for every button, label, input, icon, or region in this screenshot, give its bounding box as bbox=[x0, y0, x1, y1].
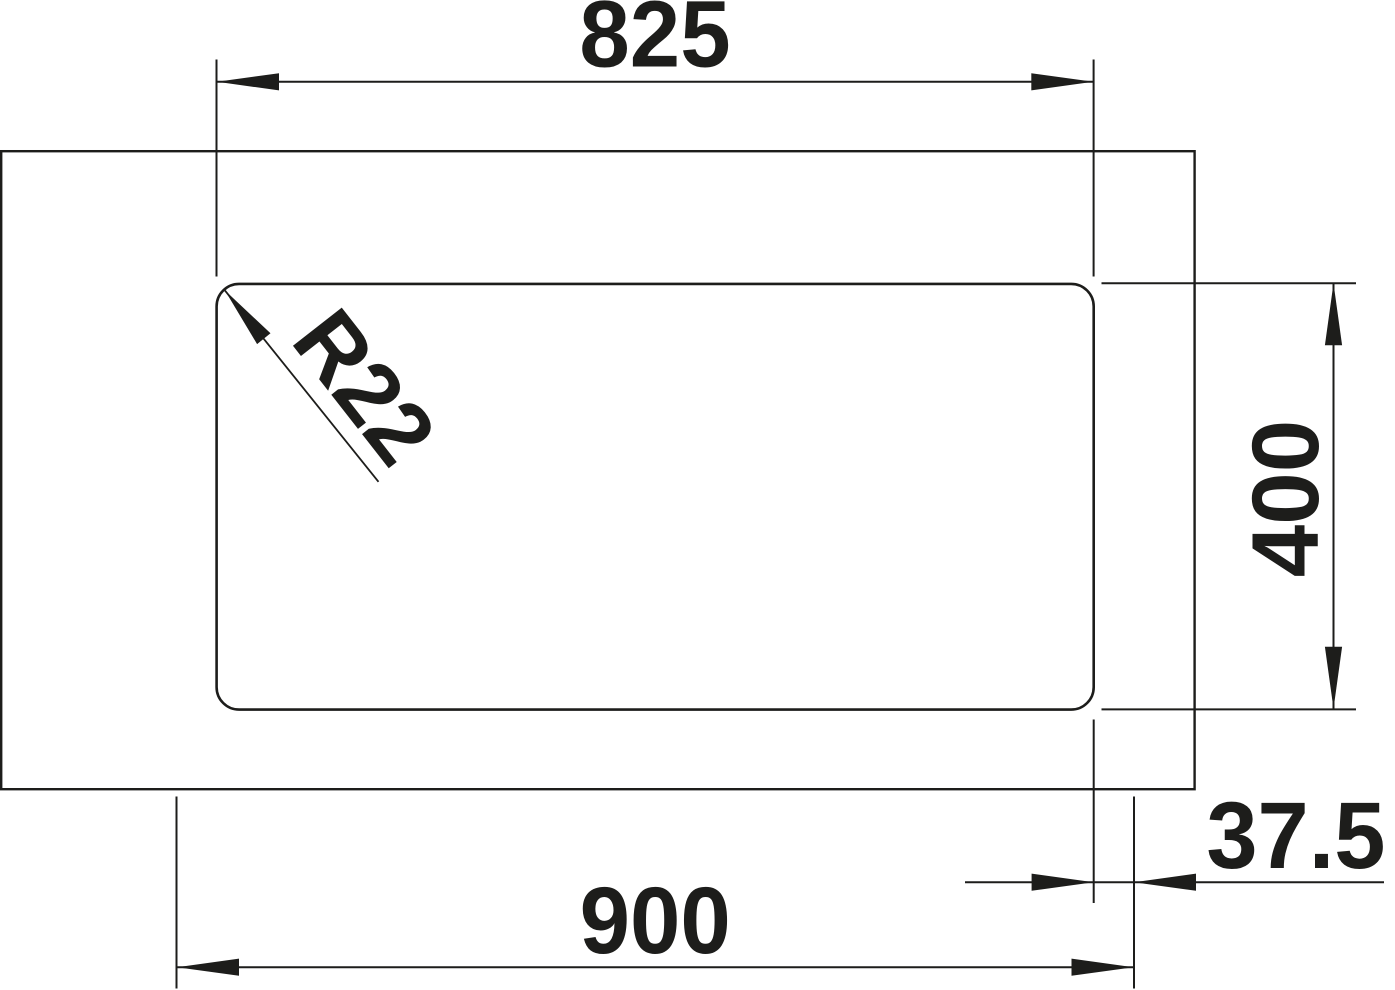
svg-text:37.5: 37.5 bbox=[1206, 783, 1385, 888]
svg-text:R22: R22 bbox=[274, 292, 454, 484]
svg-text:400: 400 bbox=[1234, 420, 1339, 578]
svg-text:900: 900 bbox=[580, 868, 731, 974]
svg-text:825: 825 bbox=[579, 0, 730, 87]
